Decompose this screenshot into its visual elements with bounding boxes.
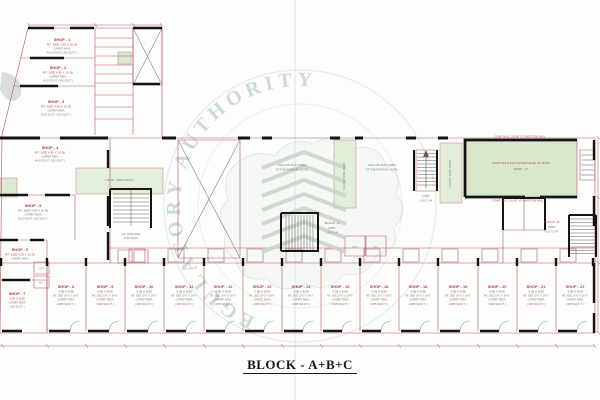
- shop-16-label: SHOP - 16: [370, 284, 390, 289]
- wc-label-3: W.C.: [373, 246, 379, 249]
- shop-12-size: 3.05 X 8.08: [215, 290, 231, 294]
- shop-15-size: 3.05 X 8.08: [332, 290, 348, 294]
- shop-8-mt: MT. SIZE 10'-0" X 26'-6": [53, 295, 79, 298]
- stair2-lobby: LOBBY: [422, 195, 430, 198]
- drawing-title: BLOCK - A+B+C: [0, 357, 600, 373]
- block-a-label: BLOCK - A: [325, 221, 340, 225]
- shop-14-size: 3.05 X 8.08: [293, 290, 309, 294]
- block-b-lobby-dim: 3.05 X 2.44: [546, 231, 559, 234]
- stair1-note-2: 10.80 SQ.MT.: [124, 237, 139, 240]
- shop-8-sqft: ( 265 SQ.FT. ): [57, 302, 76, 306]
- shop-18-size: 3.05 X 8.08: [410, 290, 426, 294]
- green-shop-label-2: SHOP - 17: [514, 167, 529, 171]
- shop-7-label: SHOP - 7: [9, 291, 26, 296]
- shop-18-mt: MT. SIZE 10'-0" X 26'-6": [405, 295, 431, 298]
- parking-label-1b: AT THE PARKING LEVEL: [276, 168, 309, 172]
- shop-9-size: 3.05 X 8.08: [97, 290, 113, 294]
- shop-22-sqft: ( 265 SQ.FT. ): [566, 302, 585, 306]
- shop-7-carpet: CARPET AREA: [9, 302, 26, 305]
- shop-15-mt: MT. SIZE 10'-0" X 26'-6": [327, 295, 353, 298]
- stair1-note-1: LVL. WISE AREA: [122, 233, 141, 236]
- shop-18-sqft: ( 265 SQ.FT. ): [409, 302, 428, 306]
- shop-15-sqft: ( 265 SQ.FT. ): [331, 302, 350, 306]
- shop-21-mt: MT. SIZE 10'-0" X 26'-6": [523, 295, 549, 298]
- shop-10-label: SHOP - 10: [135, 284, 154, 289]
- shop-11-size: 3.05 X 8.08: [176, 290, 192, 294]
- shop-20-label: SHOP - 20: [488, 284, 507, 289]
- wc-label-2: W.C.: [352, 246, 358, 249]
- small-green-cell-top: [118, 52, 131, 64]
- shop-cell-8: SHOP - 8 3.05 X 8.08 MT. SIZE 10'-0" X 2…: [53, 284, 79, 306]
- shop-2-carpet: CARPET AREA: [50, 76, 67, 79]
- shop-19-size: 3.05 X 8.08: [450, 290, 466, 294]
- shop-14-sqft: ( 265 SQ.FT. ): [292, 302, 311, 306]
- shop-7-size: 3.05 X 8.08: [9, 297, 25, 301]
- shop-12-sqft: ( 265 SQ.FT. ): [214, 302, 233, 306]
- shop-19-mt: MT. SIZE 10'-0" X 26'-6": [445, 295, 471, 298]
- shop-cell-10: SHOP - 10 3.05 X 8.08 MT. SIZE 10'-0" X …: [131, 284, 157, 306]
- shop-cell-15: SHOP - 15 3.05 X 8.08 MT. SIZE 10'-0" X …: [327, 284, 353, 306]
- block-b-lobby: LOBBY: [548, 226, 556, 229]
- door-arcs: [70, 321, 587, 331]
- shop-cell-18: SHOP - 18 3.05 X 8.08 MT. SIZE 10'-0" X …: [405, 284, 431, 306]
- shop-6-carpet: CARPET AREA: [12, 258, 29, 261]
- shop-14-label: SHOP - 14: [292, 284, 312, 289]
- shop-3-label: SHOP - 3: [48, 99, 65, 104]
- shop-cell-20: SHOP - 20 3.05 X 8.08 MT. SIZE 10'-0" X …: [484, 284, 510, 306]
- block-a-lobby: LOBBY: [328, 227, 336, 230]
- floor-plan-drawing: GUJARAT REAL ESTATE REGULATORY AUTHORITY: [0, 0, 600, 400]
- shop-5-carpet: CARPET AREA: [25, 214, 42, 217]
- shop-6-size: MT. SIZE 4.50 X 10.36: [5, 253, 36, 257]
- shop-9-mt: MT. SIZE 10'-0" X 26'-6": [92, 295, 118, 298]
- green-shop-top-note: COMP. WALL 1.50 MT. HT. PARTITION WALL: [494, 136, 546, 139]
- shop-2-area: 46.62 SQ.MT. ( 502 SQ.FT. ): [43, 80, 73, 83]
- shop-15-label: SHOP - 15: [331, 284, 351, 289]
- shop-10-size: 3.05 X 8.08: [136, 290, 152, 294]
- shop-6-label: SHOP - 6: [12, 247, 29, 252]
- stair-up-arrow: [423, 150, 429, 188]
- shop-16-sqft: ( 265 SQ.FT. ): [370, 302, 389, 306]
- block-b-label: BLOCK - B: [545, 220, 560, 224]
- floor-plan-sheet: GUJARAT REAL ESTATE REGULATORY AUTHORITY: [0, 0, 600, 400]
- shop-22-mt: MT. SIZE 10'-0" X 26'-6": [562, 295, 588, 298]
- corner-smudge: [0, 72, 21, 101]
- shop-21-sqft: ( 265 SQ.FT. ): [527, 302, 546, 306]
- shop-13-sqft: ( 265 SQ.FT. ): [253, 302, 272, 306]
- shop-1-area: 46.62 SQ.MT. ( 502 SQ.FT. ): [47, 52, 77, 55]
- shop-18-label: SHOP - 18: [409, 284, 429, 289]
- shop-11-label: SHOP - 11: [175, 284, 194, 289]
- shop-1-carpet: CARPET AREA: [54, 48, 71, 51]
- shop-cell-16: SHOP - 16 3.05 X 8.08 MT. SIZE 10'-0" X …: [366, 284, 392, 306]
- stair2-lobby-dim: 3.05 X 2.44: [420, 200, 433, 203]
- shop-cell-14: SHOP - 14 3.05 X 8.08 MT. SIZE 10'-0" X …: [288, 284, 314, 306]
- parking-label-2b: AT THE PARKING LEVEL: [366, 168, 399, 172]
- green-shop-label-1: SHOP WITH 1ST FLOOR LEVEL AT SHOP: [492, 161, 550, 165]
- shop-22-size: 3.05 X 8.08: [567, 290, 583, 294]
- shop-3-carpet: CARPET AREA: [48, 110, 65, 113]
- shop-4-carpet: CARPET AREA: [42, 156, 59, 159]
- shop-12-mt: MT. SIZE 10'-0" X 26'-6": [210, 295, 236, 298]
- road-2-label: 4.50 MT. WIDE ROAD: [448, 160, 452, 188]
- shop-19-sqft: ( 265 SQ.FT. ): [449, 302, 468, 306]
- shop-2-size: MT. SIZE 4.50 X 10.36: [43, 71, 74, 75]
- shop-16-mt: MT. SIZE 10'-0" X 26'-6": [366, 295, 392, 298]
- shop-cell-13: SHOP - 13 3.05 X 8.08 MT. SIZE 10'-0" X …: [249, 284, 275, 306]
- shop-20-sqft: ( 265 SQ.FT. ): [488, 302, 507, 306]
- shop-cell-11: SHOP - 11 3.05 X 8.08 MT. SIZE 10'-0" X …: [171, 284, 197, 306]
- shop-11-mt: MT. SIZE 10'-0" X 26'-6": [171, 295, 197, 298]
- shop-20-mt: MT. SIZE 10'-0" X 26'-6": [484, 295, 510, 298]
- shop-19-label: SHOP - 19: [449, 284, 469, 289]
- shop-1-label: SHOP - 1: [54, 37, 71, 42]
- block-a-lobby-dim: 6.05 X 2.44: [326, 232, 339, 235]
- shop-cell-9: SHOP - 9 3.05 X 8.08 MT. SIZE 10'-0" X 2…: [92, 284, 118, 306]
- shop-9-sqft: ( 265 SQ.FT. ): [96, 302, 115, 306]
- shop-3-size: MT. SIZE 4.50 X 10.36: [41, 105, 72, 109]
- shop-1-size: MT. SIZE 4.50 X 10.36: [47, 43, 78, 47]
- shop-7-sqft: ( 265 SQ.FT. ): [9, 306, 24, 309]
- shop-4-area: 46.62 SQ.MT. ( 502 SQ.FT. ): [35, 160, 65, 163]
- shop-20-size: 3.05 X 8.08: [489, 290, 505, 294]
- shop-21-label: SHOP - 21: [527, 284, 547, 289]
- shop-5-label: SHOP - 5: [25, 203, 42, 208]
- shop-10-sqft: ( 265 SQ.FT. ): [135, 302, 154, 306]
- shop-13-size: 3.05 X 8.08: [254, 290, 270, 294]
- parking-label-1a: HOLLOW PLOT AREA: [278, 163, 307, 167]
- drawing-title-text: BLOCK - A+B+C: [243, 357, 357, 374]
- shop-cell-19: SHOP - 19 3.05 X 8.08 MT. SIZE 10'-0" X …: [445, 284, 471, 306]
- shop-8-label: SHOP - 8: [58, 284, 75, 289]
- parking-label-2a: HOLLOW PLOT AREA: [368, 163, 397, 167]
- shop-cell-21: SHOP - 21 3.05 X 8.08 MT. SIZE 10'-0" X …: [523, 284, 549, 306]
- shop-16-size: 3.05 X 8.08: [371, 290, 387, 294]
- shop-21-size: 3.05 X 8.08: [528, 290, 544, 294]
- shop-4-label: SHOP - 4: [42, 145, 59, 150]
- shop-14-mt: MT. SIZE 10'-0" X 26'-6": [288, 295, 314, 298]
- shop-13-label: SHOP - 13: [253, 284, 273, 289]
- shop-4-size: MT. SIZE 4.50 X 10.36: [35, 151, 66, 155]
- shop-12-label: SHOP - 12: [214, 284, 234, 289]
- shop-5-area: 46.62 SQ.MT. ( 502 SQ.FT. ): [18, 218, 48, 221]
- entry-label: 7.50 MT. WIDE ENTRY: [104, 178, 133, 182]
- shop-11-sqft: ( 265 SQ.FT. ): [175, 302, 194, 306]
- shop-9-label: SHOP - 9: [97, 284, 114, 289]
- shop-5-size: MT. SIZE 4.50 X 10.36: [18, 209, 49, 213]
- road-1-label: 6.00 MT. WIDE ROAD: [342, 162, 346, 190]
- shop-3-area: 46.62 SQ.MT. ( 502 SQ.FT. ): [41, 114, 71, 117]
- shop-22-label: SHOP - 22: [566, 284, 586, 289]
- wc-label-1: W.C.: [39, 282, 45, 285]
- shop-cell-12: SHOP - 12 3.05 X 8.08 MT. SIZE 10'-0" X …: [210, 284, 236, 306]
- shop-cell-22: SHOP - 22 3.05 X 8.08 MT. SIZE 10'-0" X …: [562, 284, 588, 306]
- shop-2-label: SHOP - 2: [50, 65, 67, 70]
- lift-label: LIFT: [39, 268, 44, 271]
- shop-8-size: 3.05 X 8.08: [58, 290, 74, 294]
- shop-13-mt: MT. SIZE 10'-0" X 26'-6": [249, 295, 275, 298]
- shop-10-mt: MT. SIZE 10'-0" X 26'-6": [131, 295, 157, 298]
- green-shop-bottom-note: COMP. WALL 1.50 MT. HT. PARTITION WALL: [492, 200, 544, 203]
